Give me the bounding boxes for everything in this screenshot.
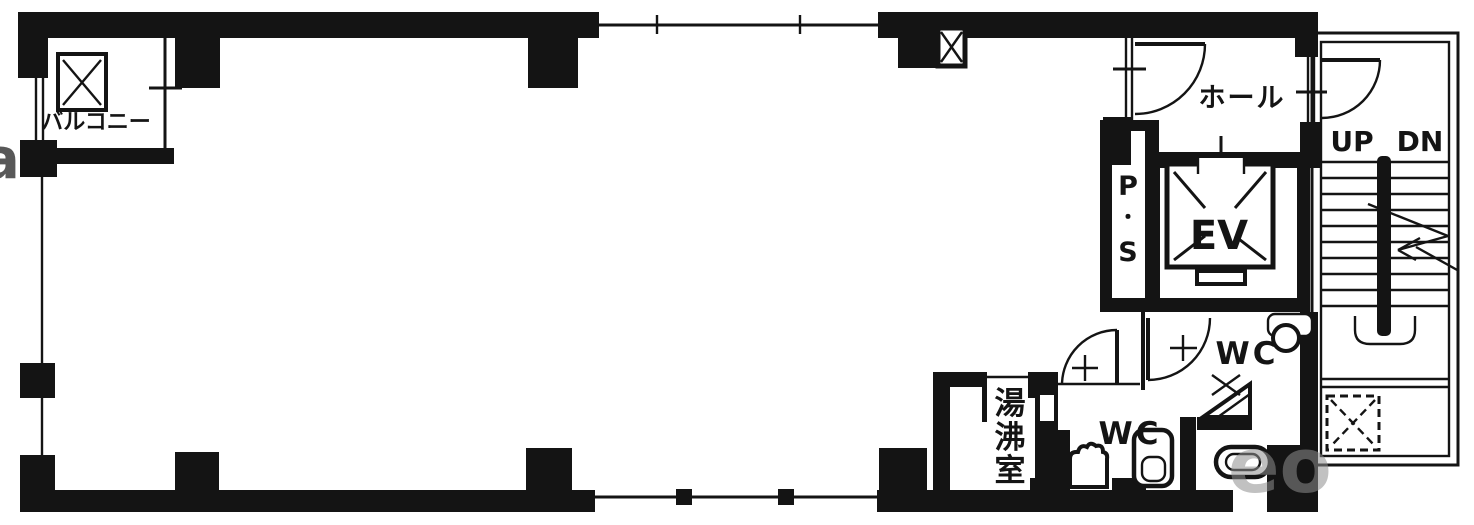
ps-label-p: P (1118, 171, 1138, 202)
stairs: UP DN (1312, 33, 1459, 465)
floor-plan-page: バルコニー ホール P ・ S (0, 0, 1474, 525)
kitchenette: 湯 沸 室 (933, 372, 1058, 492)
wall (1180, 417, 1196, 492)
elevator: EV (1147, 152, 1310, 312)
wc-upper-label: WC (1216, 336, 1279, 372)
elevator-counterweight (1197, 271, 1245, 284)
duct-box (938, 28, 965, 66)
toilet-icon (1142, 457, 1165, 481)
sink-icon (950, 387, 982, 425)
kitchenette-label: 沸 (995, 420, 1026, 456)
pillar (898, 38, 940, 68)
kitchenette-label: 湯 (995, 386, 1026, 422)
pillar (528, 38, 578, 88)
elevator-label: EV (1190, 213, 1248, 259)
watermark-text: a (0, 127, 20, 192)
wall-top-left (20, 12, 599, 38)
hall-label: ホール (1199, 83, 1286, 114)
ps-wall (1100, 120, 1112, 312)
pillar (175, 38, 220, 88)
balcony-bottom-wall (46, 148, 174, 164)
pillar (175, 452, 219, 492)
wc-middle-label: WC (1099, 416, 1162, 452)
wc-upper: WC (1143, 312, 1312, 417)
stairs-up-label: UP (1330, 125, 1373, 158)
fixture (1040, 395, 1054, 421)
elevator-door-notch (1198, 158, 1244, 170)
door-swing (1135, 44, 1205, 114)
dashed-shaft-icon (1327, 396, 1379, 450)
kitchenette-label: 室 (995, 453, 1026, 489)
ps-label-s: S (1118, 237, 1137, 268)
wall (1035, 372, 1058, 492)
stair-divider (1377, 156, 1391, 336)
wall (1102, 298, 1310, 312)
door-swing (1062, 330, 1117, 385)
balcony-label: バルコニー (41, 110, 151, 135)
pillar (879, 448, 927, 492)
wall-bottom-left (20, 490, 595, 512)
ev-wall (1297, 152, 1310, 312)
door-swing (1322, 60, 1380, 118)
floor-plan-svg: バルコニー ホール P ・ S (0, 0, 1474, 525)
pillar (526, 448, 572, 492)
ev-wall (1147, 152, 1160, 312)
watermark-text: eo (1228, 421, 1332, 510)
pillar (20, 363, 55, 398)
stairs-dn-label: DN (1397, 125, 1444, 158)
ps-label-dot: ・ (1118, 205, 1138, 229)
